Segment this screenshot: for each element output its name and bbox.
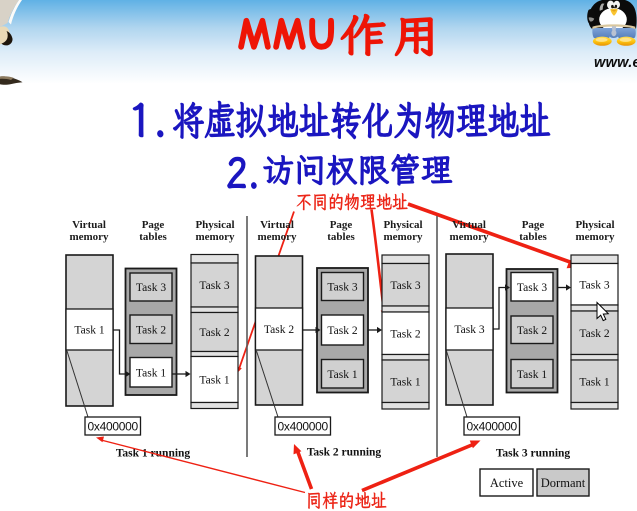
svg-text:Virtual: Virtual bbox=[452, 219, 486, 231]
svg-text:Virtual: Virtual bbox=[260, 219, 294, 231]
svg-text:Task 1: Task 1 bbox=[136, 367, 166, 379]
svg-text:Virtual: Virtual bbox=[72, 219, 106, 231]
svg-text:0x400000: 0x400000 bbox=[88, 420, 139, 434]
svg-text:Task 3: Task 3 bbox=[199, 280, 229, 292]
svg-text:Task 3: Task 3 bbox=[579, 279, 609, 291]
svg-text:Task 1: Task 1 bbox=[517, 369, 547, 381]
svg-text:Task 2: Task 2 bbox=[579, 328, 609, 340]
svg-text:Task 2: Task 2 bbox=[327, 325, 357, 337]
svg-text:tables: tables bbox=[139, 231, 167, 243]
svg-text:Task 3: Task 3 bbox=[390, 280, 420, 292]
svg-text:Page: Page bbox=[142, 219, 165, 231]
svg-text:tables: tables bbox=[327, 231, 355, 243]
svg-text:Task 1: Task 1 bbox=[390, 376, 420, 388]
svg-text:memory: memory bbox=[383, 231, 423, 243]
svg-text:Task 3: Task 3 bbox=[327, 282, 357, 294]
svg-text:Physical: Physical bbox=[195, 219, 234, 231]
svg-text:Task 1: Task 1 bbox=[74, 325, 104, 337]
svg-text:Task 3 running: Task 3 running bbox=[496, 448, 571, 460]
svg-text:Task 3: Task 3 bbox=[454, 324, 484, 336]
svg-text:Page: Page bbox=[522, 219, 545, 231]
svg-text:0x400000: 0x400000 bbox=[278, 420, 329, 434]
svg-text:0x400000: 0x400000 bbox=[467, 420, 518, 434]
svg-text:memory: memory bbox=[449, 231, 489, 243]
svg-text:Page: Page bbox=[330, 219, 353, 231]
svg-text:Task 1: Task 1 bbox=[579, 376, 609, 388]
svg-text:Task 2: Task 2 bbox=[390, 328, 420, 340]
svg-text:Task 2: Task 2 bbox=[264, 324, 294, 336]
svg-text:Task 2: Task 2 bbox=[517, 325, 547, 337]
svg-text:memory: memory bbox=[195, 231, 235, 243]
svg-text:memory: memory bbox=[257, 231, 297, 243]
svg-text:Dormant: Dormant bbox=[541, 476, 586, 490]
svg-text:Task 2 running: Task 2 running bbox=[307, 447, 382, 459]
svg-text:Task 2: Task 2 bbox=[199, 327, 229, 339]
svg-text:Task 2: Task 2 bbox=[136, 324, 166, 336]
svg-text:Task 3: Task 3 bbox=[517, 282, 547, 294]
svg-text:Task 1: Task 1 bbox=[199, 375, 229, 387]
svg-text:Physical: Physical bbox=[383, 219, 422, 231]
svg-text:www.e: www.e bbox=[594, 55, 637, 71]
svg-text:tables: tables bbox=[519, 231, 547, 243]
svg-text:memory: memory bbox=[69, 231, 109, 243]
svg-text:Task 3: Task 3 bbox=[136, 282, 166, 294]
svg-text:memory: memory bbox=[575, 231, 615, 243]
svg-text:Active: Active bbox=[490, 476, 524, 490]
svg-text:Physical: Physical bbox=[575, 219, 614, 231]
svg-text:Task 1: Task 1 bbox=[327, 369, 357, 381]
